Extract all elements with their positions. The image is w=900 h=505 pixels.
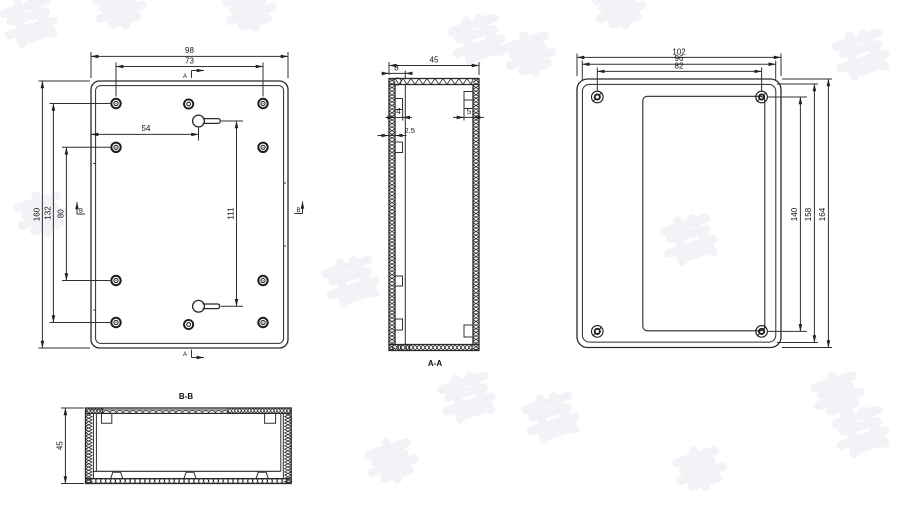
svg-text:A-A: A-A — [428, 359, 442, 368]
svg-text:5: 5 — [467, 107, 472, 116]
svg-text:2.5: 2.5 — [405, 126, 415, 135]
svg-text:54: 54 — [142, 124, 151, 133]
svg-text:132: 132 — [44, 206, 53, 220]
svg-text:140: 140 — [790, 207, 799, 221]
svg-text:73: 73 — [185, 57, 194, 66]
svg-text:B-B: B-B — [179, 392, 193, 401]
svg-text:4: 4 — [396, 107, 401, 116]
svg-text:160: 160 — [33, 207, 42, 221]
svg-text:A: A — [183, 74, 187, 80]
svg-text:82: 82 — [675, 61, 684, 70]
svg-text:8: 8 — [394, 64, 399, 73]
svg-text:45: 45 — [56, 441, 65, 450]
svg-text:80: 80 — [57, 209, 66, 218]
svg-text:98: 98 — [185, 46, 194, 55]
svg-text:164: 164 — [818, 207, 827, 221]
svg-text:111: 111 — [227, 207, 236, 220]
svg-text:A: A — [183, 352, 187, 358]
svg-text:158: 158 — [804, 207, 813, 221]
svg-text:45: 45 — [430, 56, 439, 65]
